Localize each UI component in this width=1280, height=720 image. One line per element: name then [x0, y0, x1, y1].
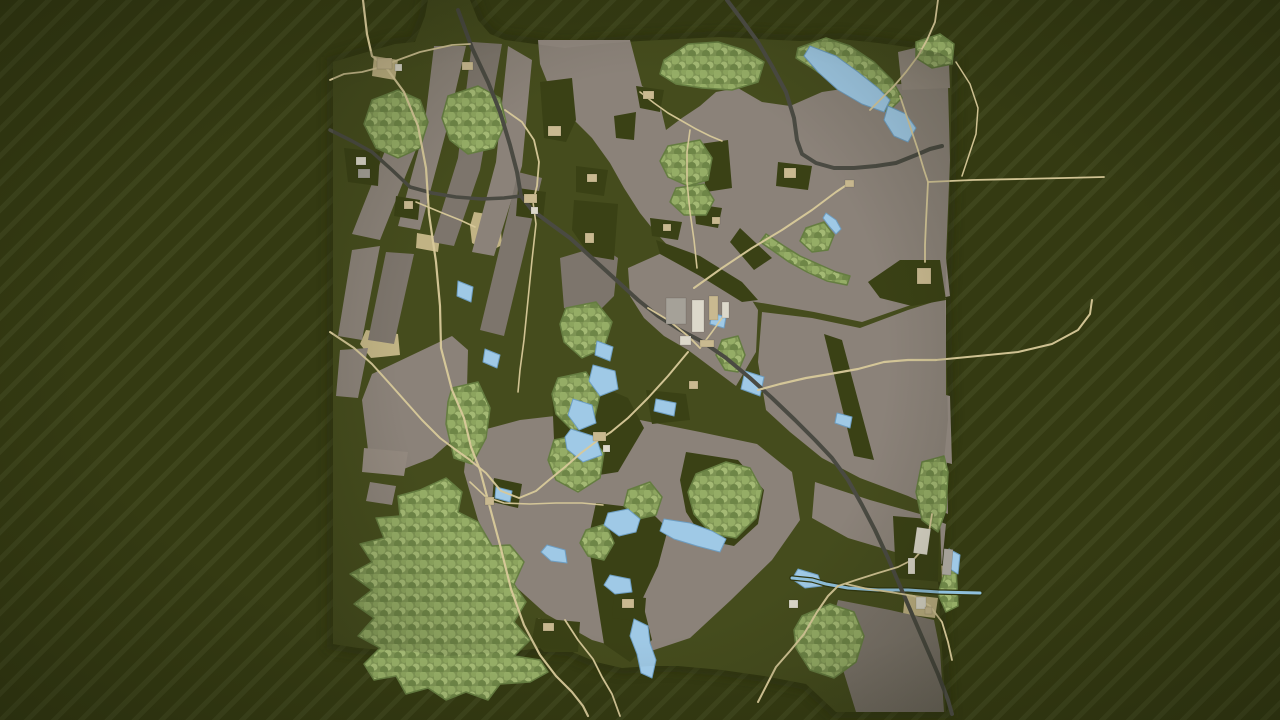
map-canvas[interactable] — [0, 0, 1280, 720]
page-vignette — [0, 0, 1280, 720]
map-overview-screen — [0, 0, 1280, 720]
